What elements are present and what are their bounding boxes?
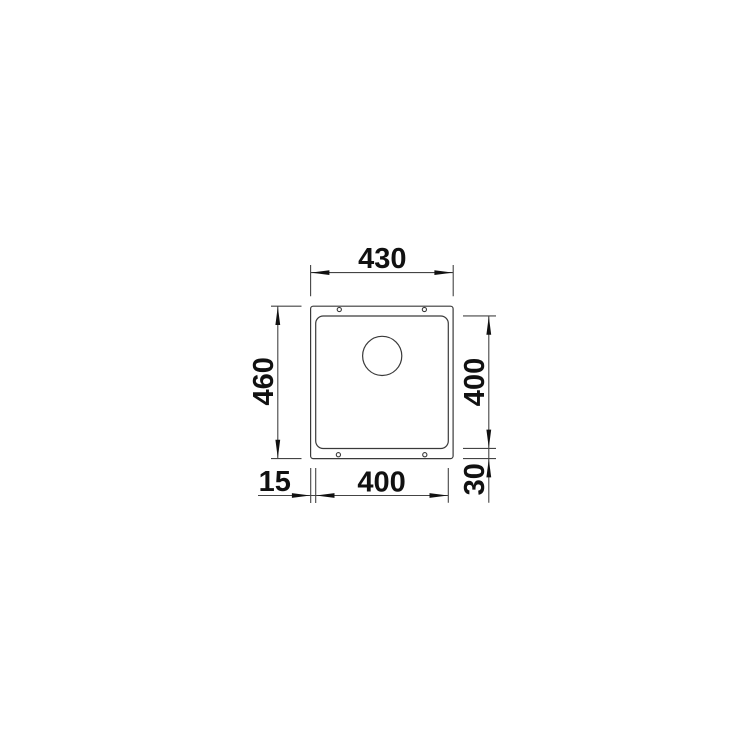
svg-text:400: 400 — [459, 358, 491, 406]
svg-text:30: 30 — [459, 463, 491, 495]
svg-text:15: 15 — [259, 466, 291, 498]
svg-text:430: 430 — [358, 243, 406, 275]
svg-text:400: 400 — [357, 467, 405, 499]
svg-text:460: 460 — [248, 357, 280, 405]
